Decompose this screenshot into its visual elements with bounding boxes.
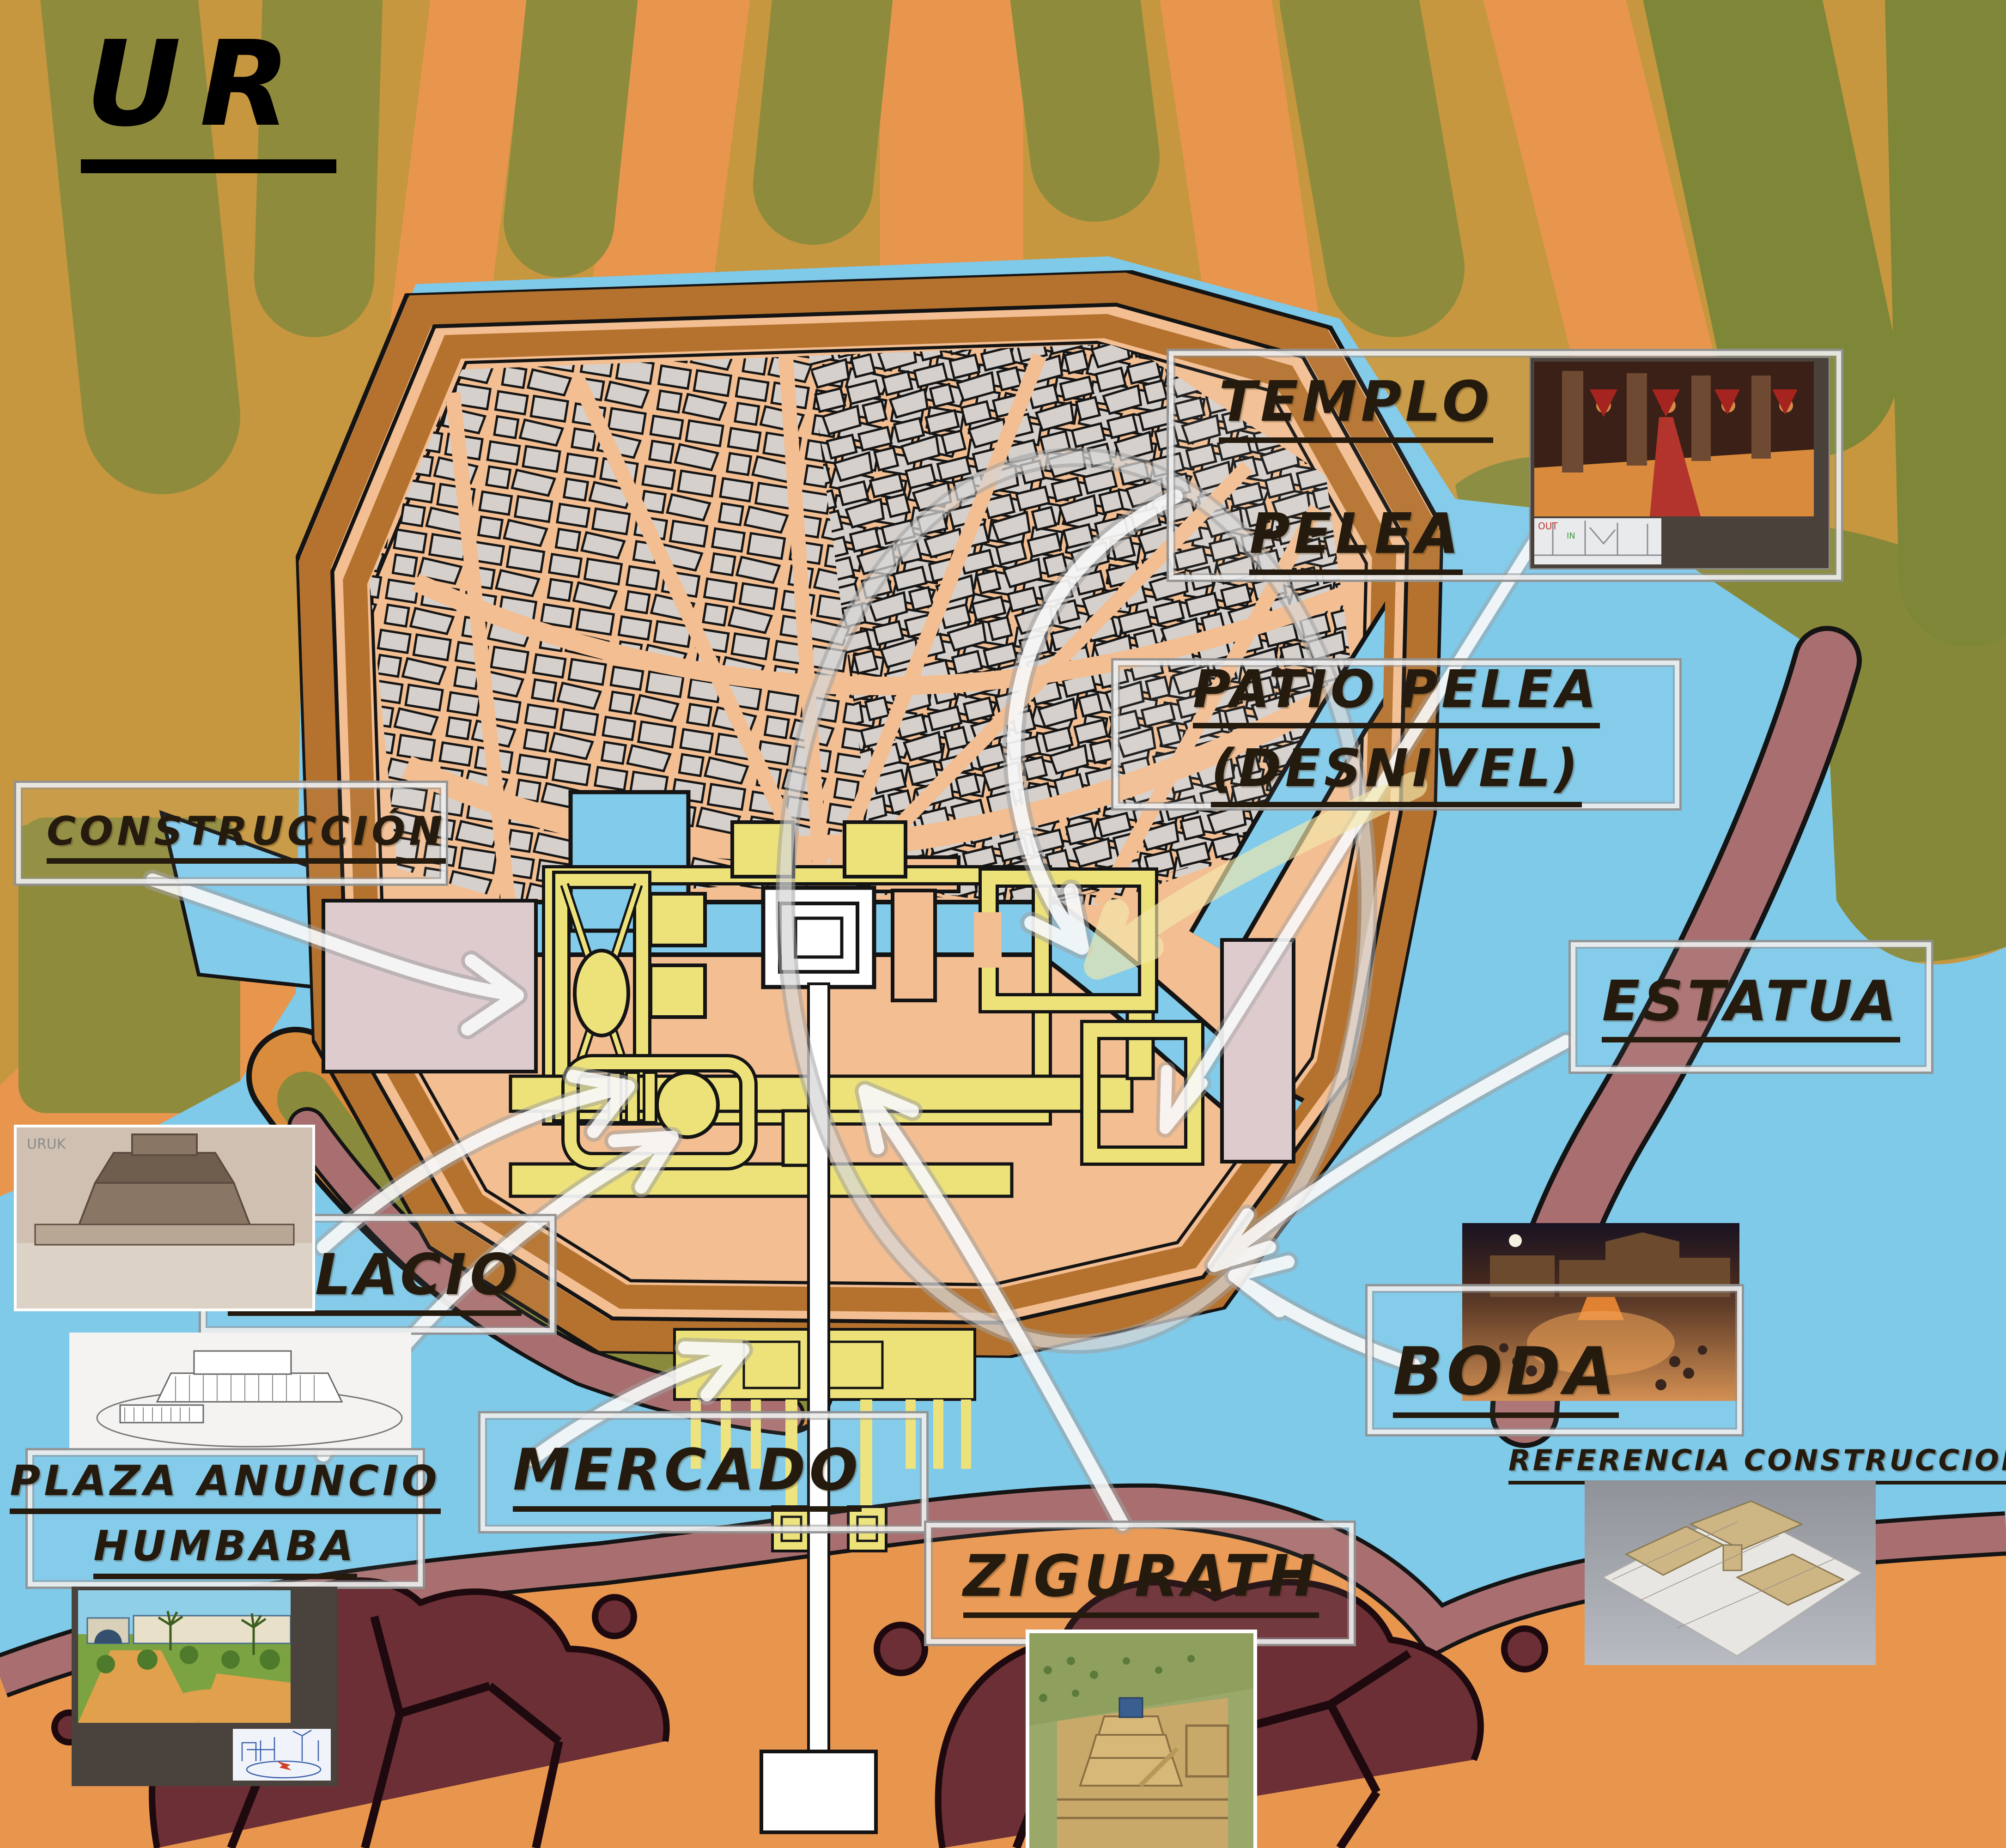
estatua-box: ESTATUA: [1568, 940, 1933, 1074]
construccion-label: CONSTRUCCIÓN: [47, 810, 446, 864]
plaza-image: [78, 1590, 291, 1723]
plaza-image-panel: [72, 1587, 337, 1786]
uruk-reference-image: URUK: [14, 1125, 315, 1311]
referencia-label-wrap: REFERENCIA CONSTRUCCIONES: [1508, 1445, 2006, 1484]
zigurath-box: ZIGURATH: [924, 1521, 1356, 1646]
templo-pelea-label-line2: PELEA: [1249, 504, 1462, 575]
plaza-anuncio-humbaba-box: PLAZA ANUNCIO HUMBABA: [25, 1448, 425, 1589]
palacio-drawing-image: [69, 1333, 411, 1450]
templo-pelea-image-panel: OUT IN: [1529, 357, 1830, 570]
mercado-box: MERCADO: [478, 1411, 929, 1533]
templo-pelea-image: [1534, 362, 1814, 516]
boda-label: BODA: [1393, 1336, 1619, 1418]
map-title: UR: [81, 25, 336, 173]
dock: [761, 1751, 876, 1832]
plaza-label-line1: PLAZA ANUNCIO: [10, 1458, 441, 1514]
plaza-sketch: [233, 1729, 331, 1781]
patio-pelea-box: PATIO PELEA (DESNIVEL): [1111, 658, 1682, 811]
referencia-label: REFERENCIA CONSTRUCCIONES: [1508, 1445, 2006, 1484]
templo-pelea-label-line1: TEMPLO: [1219, 372, 1493, 443]
mercado-label: MERCADO: [513, 1439, 862, 1512]
zigurath-image: [1026, 1630, 1257, 1848]
svg-text:IN: IN: [1567, 531, 1575, 541]
svg-text:URUK: URUK: [27, 1136, 67, 1152]
construccion-box: CONSTRUCCIÓN: [14, 781, 448, 886]
ur-map-page: UR CONSTRUCCIÓN TEMPLO PELEA OUT IN PATI…: [0, 0, 2006, 1848]
svg-text:OUT: OUT: [1538, 521, 1558, 532]
patio-pelea-label-line2: (DESNIVEL): [1211, 740, 1581, 807]
estatua-label: ESTATUA: [1602, 971, 1900, 1042]
boda-box: BODA: [1365, 1284, 1744, 1436]
zigurath-label: ZIGURATH: [963, 1545, 1319, 1618]
referencia-image: [1585, 1480, 1876, 1665]
plaza-label-line2: HUMBABA: [93, 1523, 357, 1579]
patio-pelea-label-line1: PATIO PELEA: [1193, 661, 1600, 728]
templo-pelea-sketch: OUT IN: [1534, 518, 1661, 564]
